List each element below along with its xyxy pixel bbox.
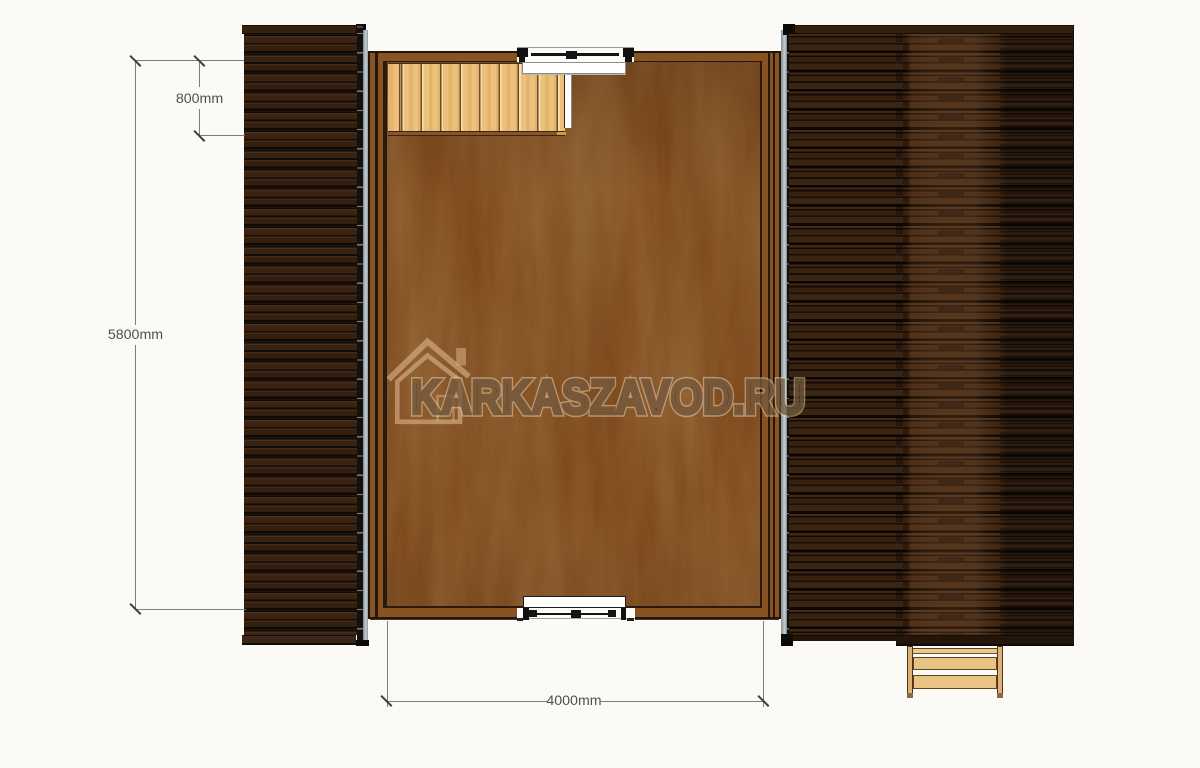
svg-text:KARKASZAVOD.RU: KARKASZAVOD.RU [411, 372, 805, 425]
